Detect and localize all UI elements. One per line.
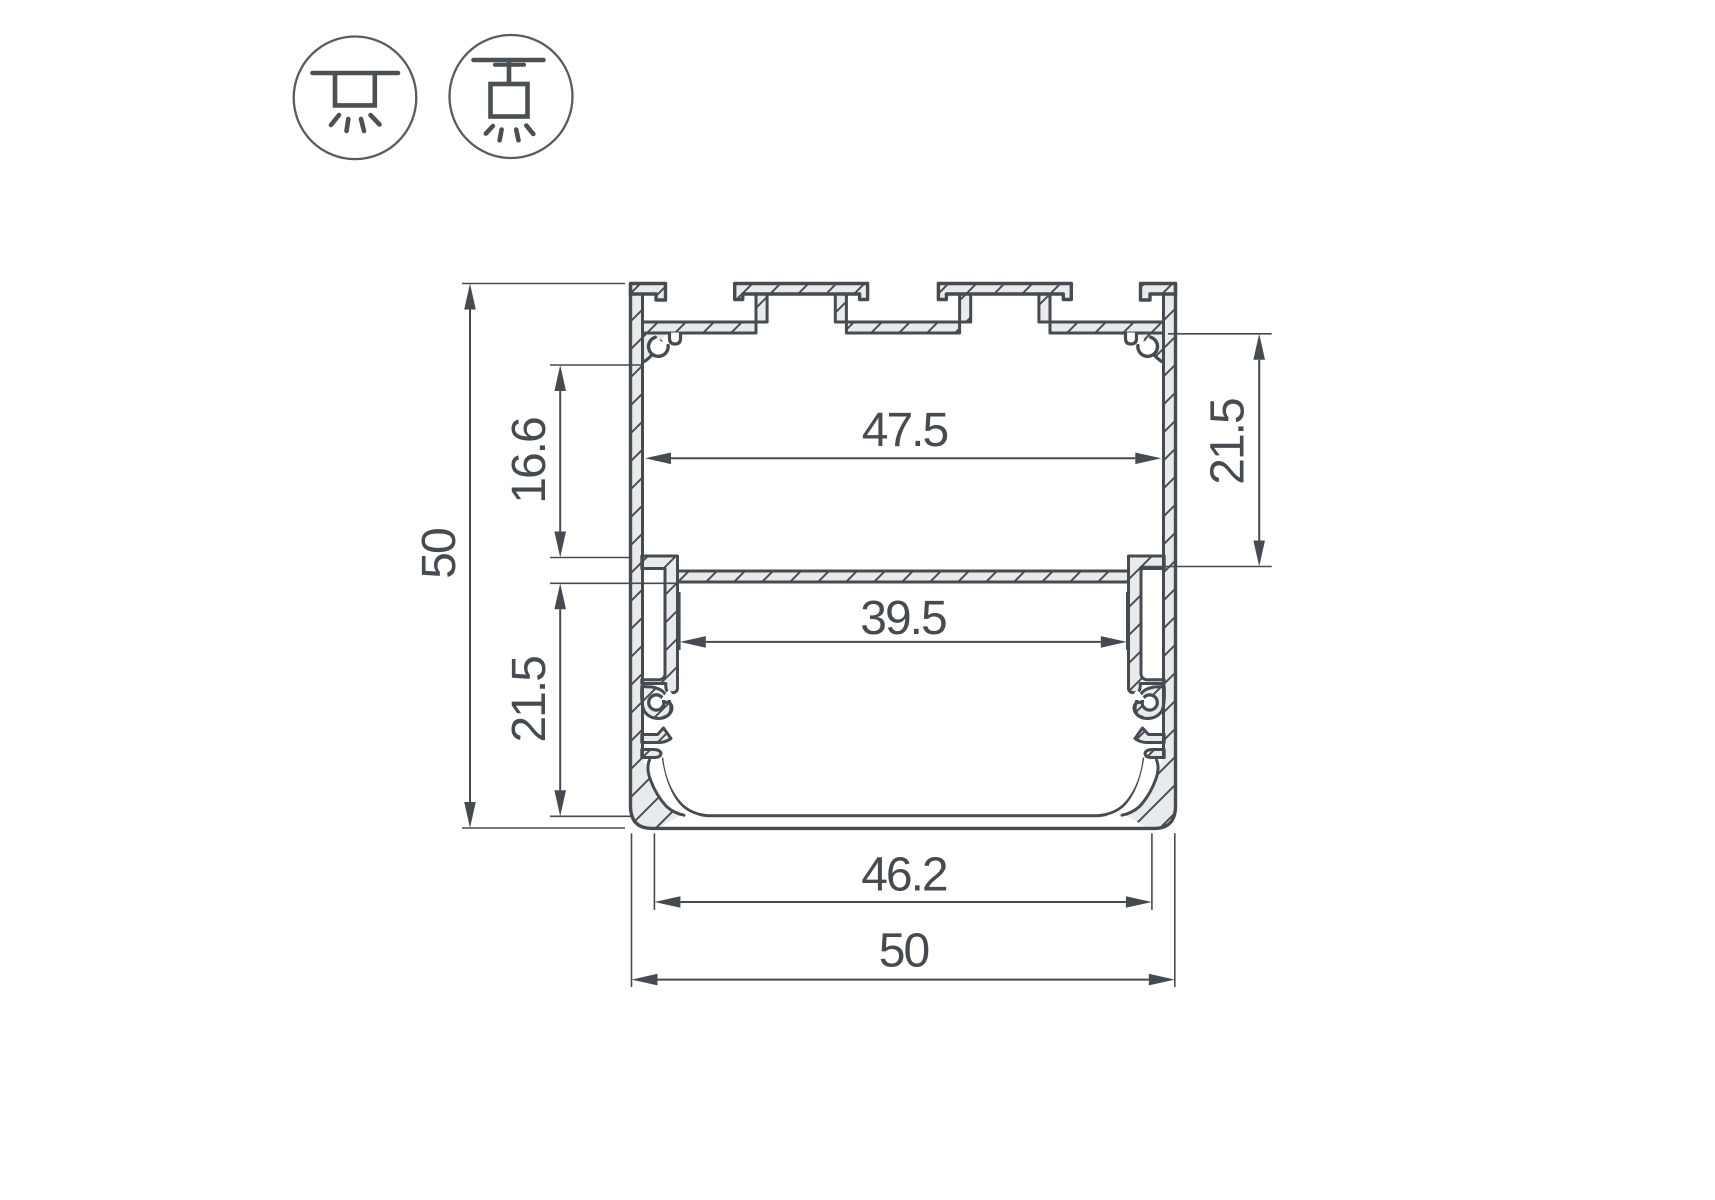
svg-text:50: 50 [879, 925, 929, 978]
svg-text:16.6: 16.6 [503, 418, 556, 504]
svg-text:46.2: 46.2 [861, 849, 947, 902]
svg-text:39.5: 39.5 [860, 592, 946, 645]
svg-text:50: 50 [413, 529, 466, 579]
svg-text:47.5: 47.5 [862, 404, 948, 457]
svg-text:21.5: 21.5 [1202, 399, 1255, 485]
svg-text:21.5: 21.5 [503, 657, 556, 743]
